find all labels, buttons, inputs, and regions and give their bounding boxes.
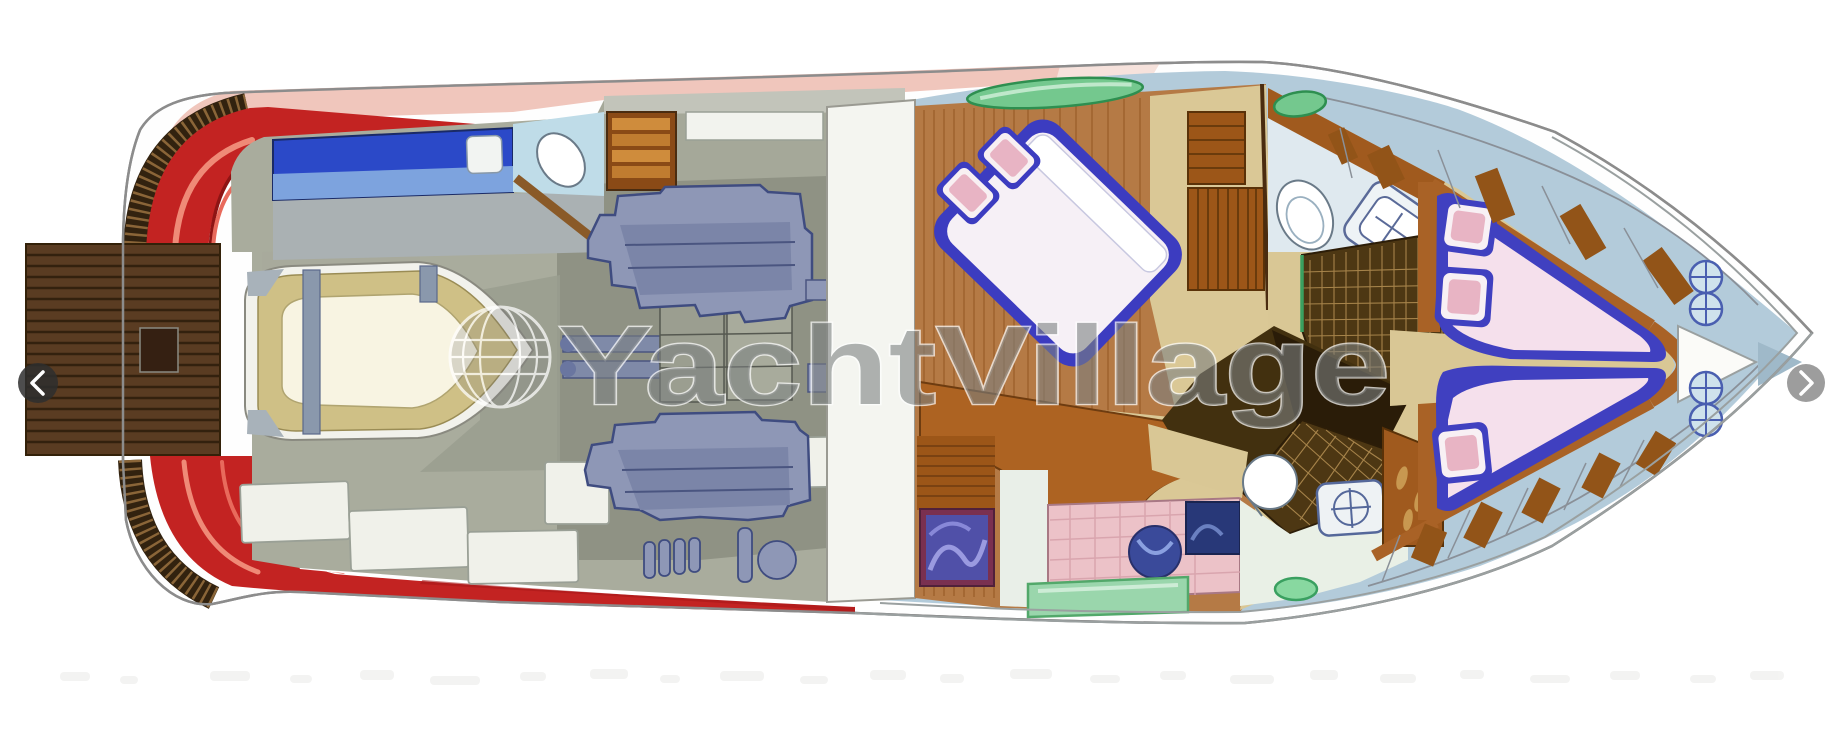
svg-text:YachtVillage: YachtVillage — [558, 303, 1390, 428]
